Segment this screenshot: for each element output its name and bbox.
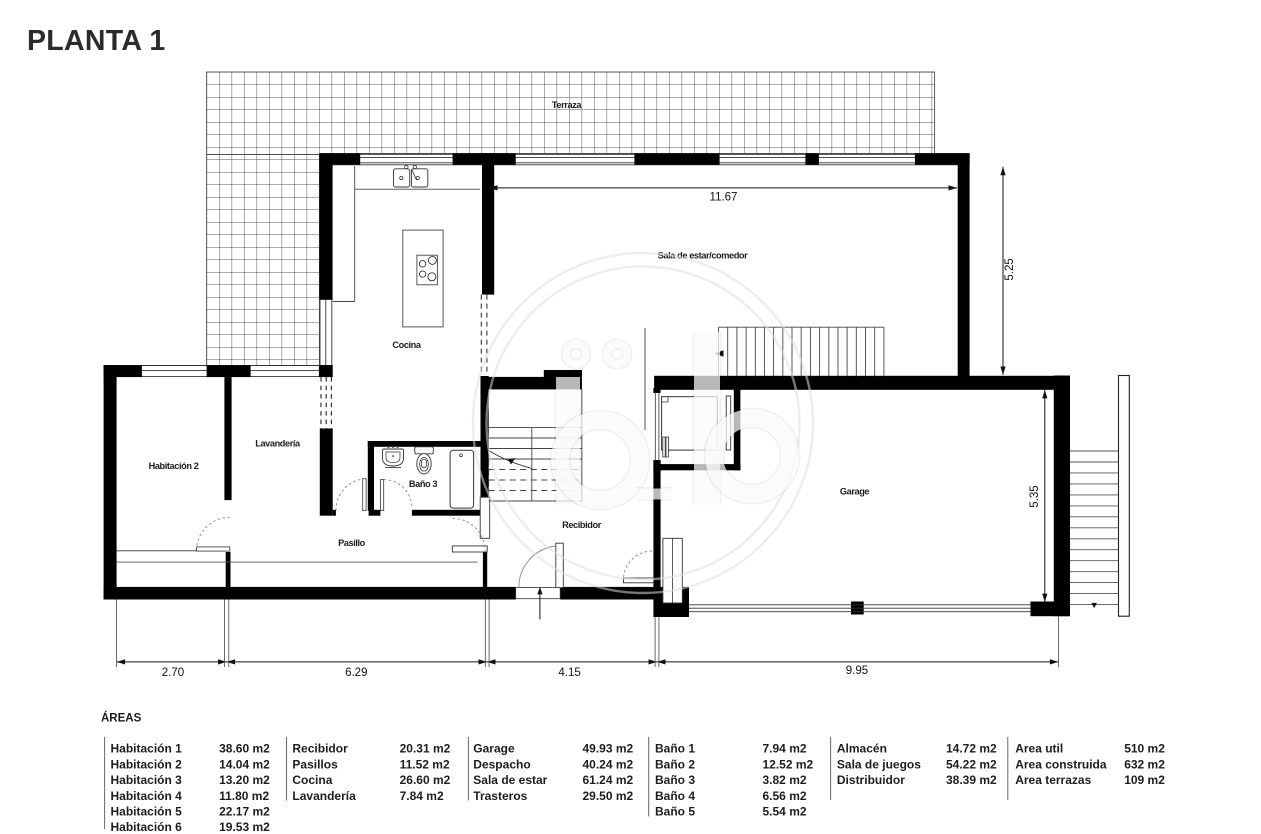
- svg-text:Baño 4: Baño 4: [655, 789, 695, 803]
- svg-text:Lavandería: Lavandería: [292, 789, 356, 803]
- svg-text:Area util: Area util: [1015, 742, 1063, 756]
- svg-text:20.31 m2: 20.31 m2: [400, 742, 451, 756]
- svg-text:Garage: Garage: [840, 487, 870, 497]
- svg-text:49.93 m2: 49.93 m2: [583, 742, 634, 756]
- svg-text:Baño 5: Baño 5: [655, 805, 695, 819]
- svg-text:61.24 m2: 61.24 m2: [583, 773, 634, 787]
- svg-text:Cocina: Cocina: [392, 340, 422, 350]
- svg-text:Baño 2: Baño 2: [655, 757, 695, 771]
- svg-text:632 m2: 632 m2: [1124, 757, 1165, 771]
- svg-text:11.67: 11.67: [710, 192, 738, 204]
- svg-text:Pasillo: Pasillo: [338, 538, 366, 548]
- svg-text:Distribuidor: Distribuidor: [837, 773, 905, 787]
- svg-text:Habitación 1: Habitación 1: [111, 742, 183, 756]
- svg-text:29.50 m2: 29.50 m2: [583, 789, 634, 803]
- svg-text:Area terrazas: Area terrazas: [1015, 773, 1091, 787]
- svg-text:6.56 m2: 6.56 m2: [763, 789, 807, 803]
- svg-text:4.15: 4.15: [558, 667, 580, 679]
- svg-text:ÁREAS: ÁREAS: [101, 712, 142, 725]
- svg-text:Habitación 4: Habitación 4: [111, 789, 183, 803]
- svg-text:5.25: 5.25: [1004, 258, 1016, 280]
- svg-text:11.80 m2: 11.80 m2: [219, 789, 269, 803]
- svg-text:11.52 m2: 11.52 m2: [400, 757, 450, 771]
- svg-text:Recibidor: Recibidor: [292, 742, 348, 756]
- svg-text:Garage: Garage: [473, 742, 515, 756]
- svg-text:Recibidor: Recibidor: [562, 520, 602, 530]
- svg-text:Area construida: Area construida: [1015, 757, 1107, 771]
- svg-text:Baño 3: Baño 3: [409, 479, 438, 489]
- svg-text:54.22 m2: 54.22 m2: [946, 757, 997, 771]
- svg-text:5.54 m2: 5.54 m2: [763, 805, 807, 819]
- svg-text:Habitación 5: Habitación 5: [111, 805, 183, 819]
- svg-text:9.95: 9.95: [846, 665, 868, 677]
- svg-text:Baño 3: Baño 3: [655, 773, 695, 787]
- svg-text:Habitación 2: Habitación 2: [111, 757, 183, 771]
- svg-text:13.20 m2: 13.20 m2: [219, 773, 270, 787]
- svg-text:Sala de estar: Sala de estar: [473, 773, 547, 787]
- svg-text:3.82 m2: 3.82 m2: [763, 773, 807, 787]
- svg-text:Trasteros: Trasteros: [473, 789, 527, 803]
- svg-text:Pasillos: Pasillos: [292, 757, 338, 771]
- svg-text:Habitación 3: Habitación 3: [111, 773, 183, 787]
- svg-text:Sala de juegos: Sala de juegos: [837, 757, 921, 771]
- svg-text:26.60 m2: 26.60 m2: [400, 773, 451, 787]
- svg-text:PLANTA 1: PLANTA 1: [27, 25, 166, 57]
- svg-text:2.70: 2.70: [162, 667, 184, 679]
- svg-text:Despacho: Despacho: [473, 757, 530, 771]
- svg-text:Habitación 2: Habitación 2: [149, 461, 199, 471]
- svg-text:7.84 m2: 7.84 m2: [400, 789, 444, 803]
- svg-text:Cocina: Cocina: [292, 773, 332, 787]
- svg-text:109 m2: 109 m2: [1124, 773, 1165, 787]
- svg-text:Almacén: Almacén: [837, 742, 887, 756]
- svg-text:Terraza: Terraza: [552, 100, 582, 110]
- svg-text:510 m2: 510 m2: [1124, 742, 1165, 756]
- svg-text:Lavandería: Lavandería: [255, 439, 301, 449]
- svg-text:Habitación 6: Habitación 6: [111, 820, 183, 834]
- svg-text:14.72 m2: 14.72 m2: [946, 742, 997, 756]
- svg-text:14.04 m2: 14.04 m2: [219, 757, 270, 771]
- svg-text:38.60 m2: 38.60 m2: [219, 742, 270, 756]
- svg-text:12.52 m2: 12.52 m2: [763, 757, 814, 771]
- svg-text:38.39 m2: 38.39 m2: [946, 773, 997, 787]
- svg-text:5.35: 5.35: [1029, 485, 1041, 507]
- svg-text:Baño 1: Baño 1: [655, 742, 695, 756]
- svg-text:19.53 m2: 19.53 m2: [219, 820, 270, 834]
- svg-text:7.94 m2: 7.94 m2: [763, 742, 807, 756]
- svg-text:6.29: 6.29: [345, 667, 367, 679]
- svg-text:40.24 m2: 40.24 m2: [583, 757, 634, 771]
- svg-text:22.17 m2: 22.17 m2: [219, 805, 270, 819]
